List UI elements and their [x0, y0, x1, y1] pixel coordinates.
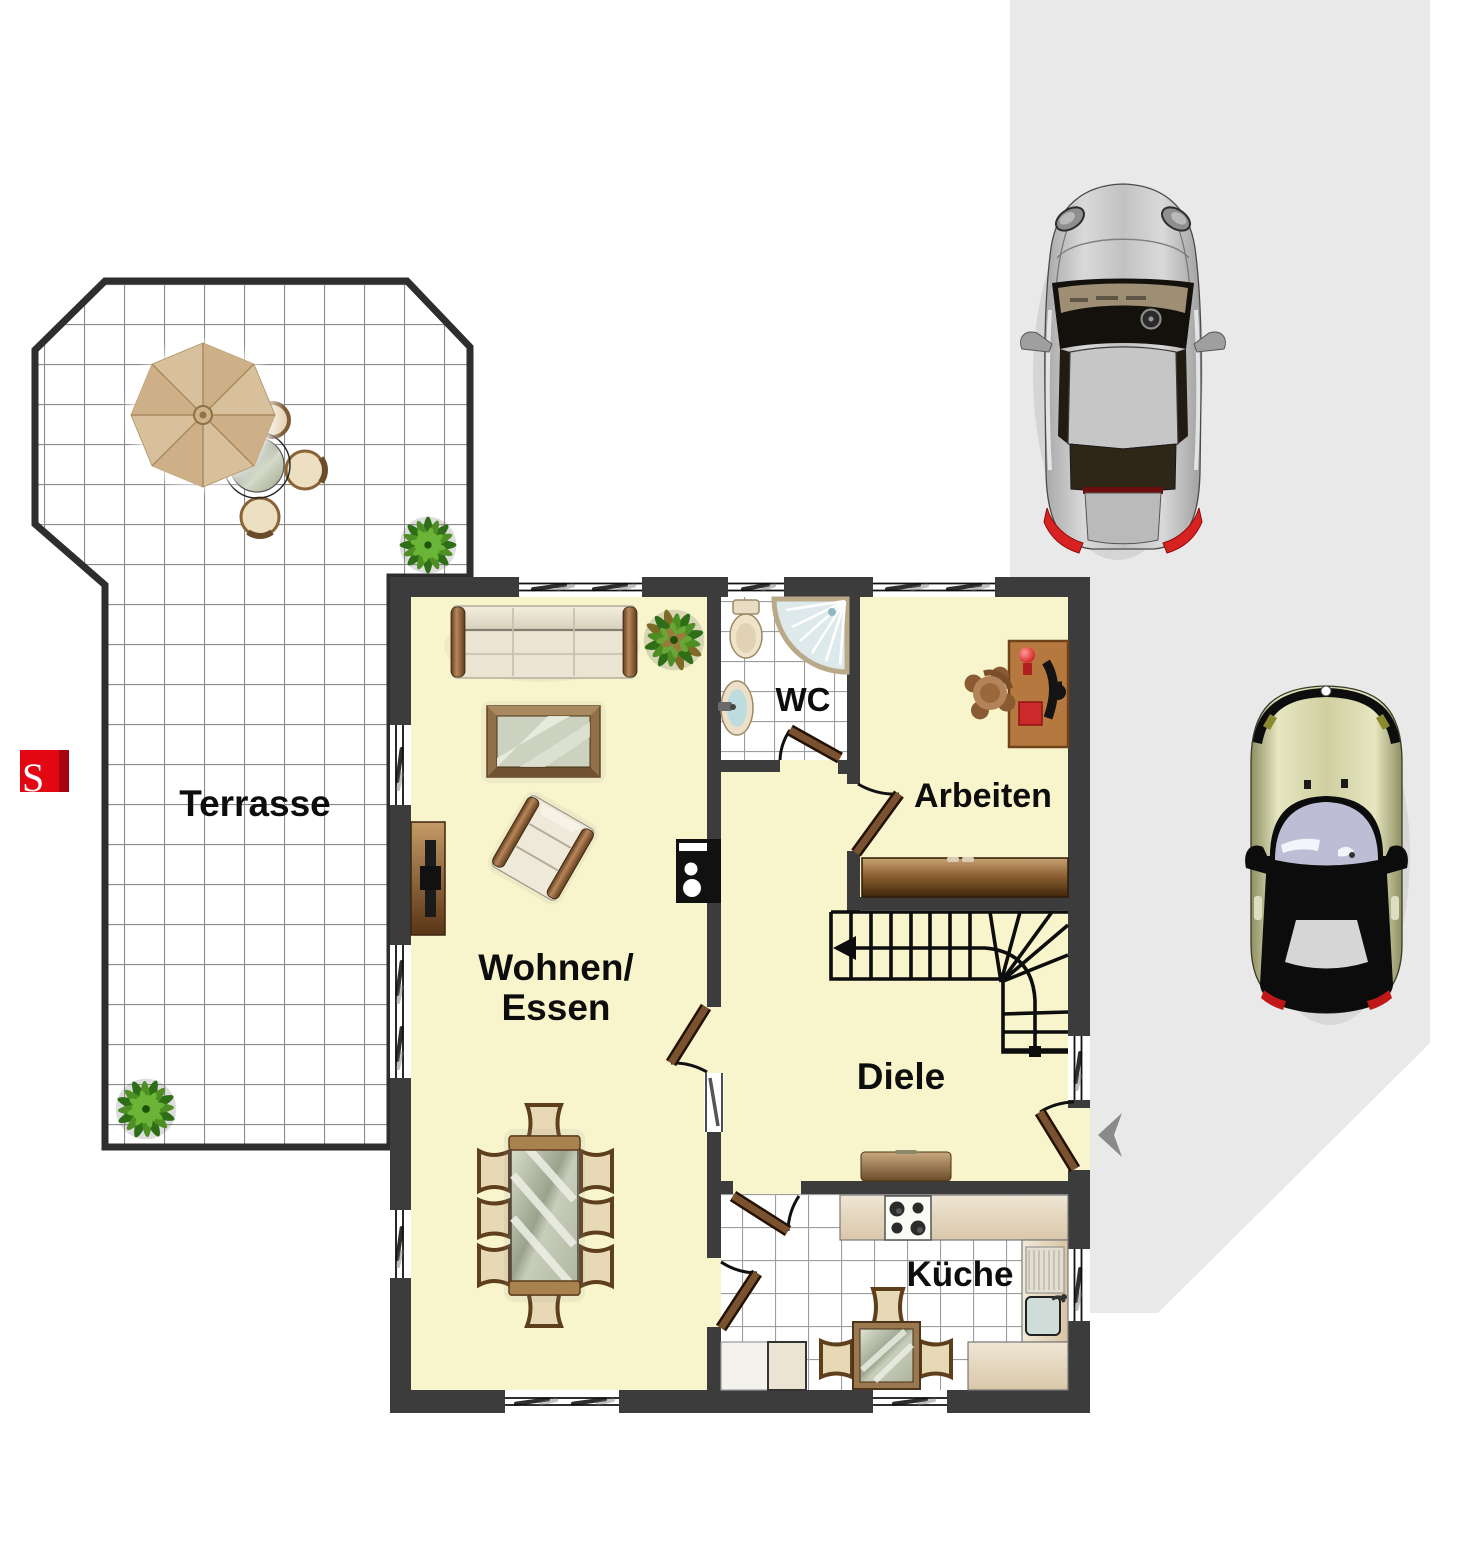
svg-text:WC: WC: [776, 681, 831, 718]
svg-text:S: S: [22, 755, 44, 800]
svg-text:Arbeiten: Arbeiten: [914, 777, 1052, 815]
svg-text:Essen: Essen: [501, 987, 610, 1028]
svg-text:Küche: Küche: [907, 1255, 1014, 1294]
svg-text:Wohnen/: Wohnen/: [478, 947, 634, 988]
svg-text:Terrasse: Terrasse: [179, 783, 331, 824]
svg-text:Diele: Diele: [857, 1056, 945, 1097]
